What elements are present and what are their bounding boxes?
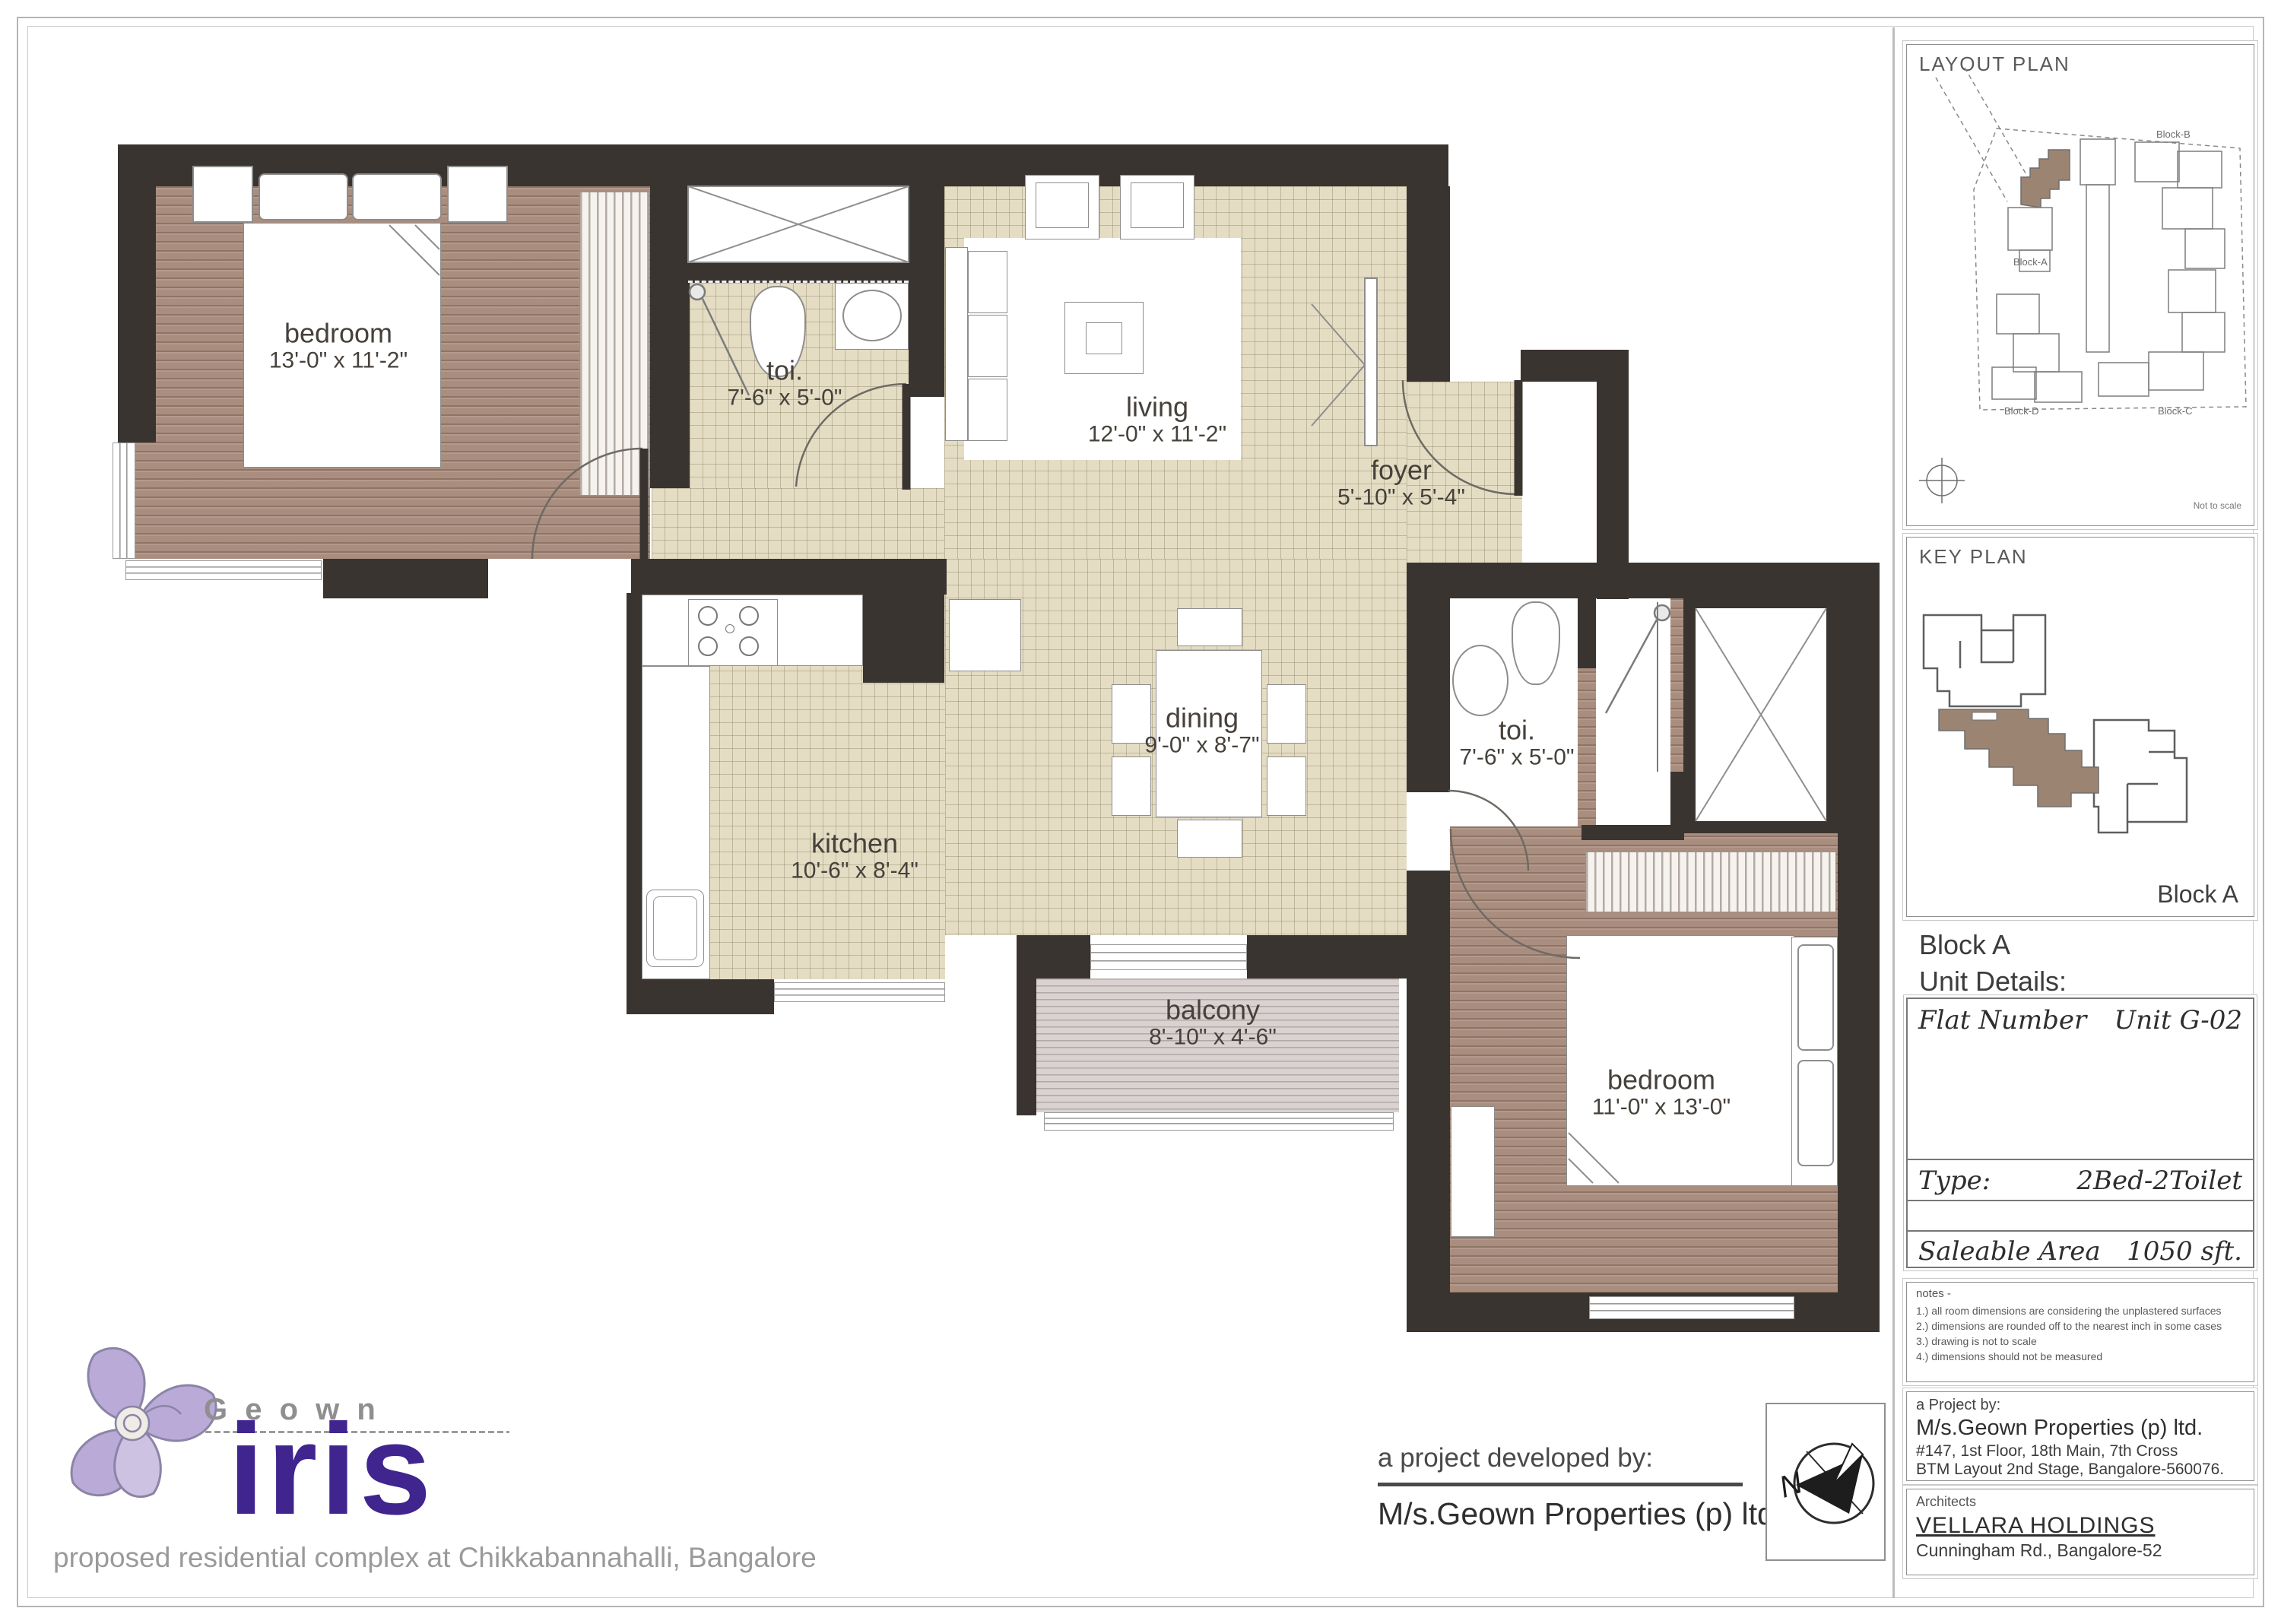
compass-icon (1919, 458, 1965, 503)
room-label-toilet2: toi. 7'-6" x 5'-0" (1459, 716, 1574, 772)
type-label: Type: (1918, 1166, 1991, 1196)
room-name: toi. (727, 357, 842, 385)
saleable-area-label: Saleable Area (1918, 1236, 2101, 1267)
room-label-foyer: foyer 5'-10" x 5'-4" (1337, 456, 1465, 512)
key-plan-title: KEY PLAN (1919, 545, 2028, 569)
sofa-back (945, 247, 968, 441)
unit-highlight (1939, 709, 2099, 807)
wall (909, 144, 944, 397)
iris-flower-logo-icon (40, 1332, 230, 1537)
room-label-bedroom1: bedroom 13'-0" x 11'-2" (269, 319, 408, 375)
project-by-name: M/s.Geown Properties (p) ltd. (1916, 1416, 2245, 1441)
pillow (1797, 1060, 1834, 1166)
burner-icon (739, 636, 759, 656)
north-compass-icon: N (1767, 1404, 1887, 1562)
wall (1407, 563, 1880, 598)
project-by-heading: a Project by: (1916, 1397, 2245, 1414)
not-to-scale-note: Not to scale (2194, 500, 2242, 511)
table-row-flat: Flat Number Unit G-02 (1908, 999, 2253, 1160)
room-name: kitchen (791, 829, 918, 858)
wall (1521, 350, 1629, 382)
cabinet (949, 599, 1021, 671)
room-dims: 11'-0" x 13'-0" (1592, 1095, 1731, 1121)
toilet-wc-icon (1512, 601, 1560, 685)
unit-details-table: Flat Number Unit G-02 Type: 2Bed-2Toilet… (1906, 998, 2254, 1268)
corridor-floor (652, 488, 945, 560)
bedside-cabinet (192, 166, 253, 223)
room-label-balcony: balcony 8'-10" x 4'-6" (1149, 996, 1277, 1051)
room-label-dining: dining 9'-0" x 8'-7" (1144, 704, 1259, 760)
saleable-area-value: 1050 sft. (2127, 1236, 2242, 1267)
sofa-cushion (968, 379, 1007, 441)
dining-chair (1177, 820, 1242, 858)
room-dims: 7'-6" x 5'-0" (727, 385, 842, 412)
unit-highlight-notch (1972, 712, 1997, 720)
window (125, 560, 322, 580)
bedside-cabinet (447, 166, 508, 223)
block-d-label: Block-D (2004, 405, 2039, 417)
room-name: bedroom (1592, 1066, 1731, 1095)
burner-knob (725, 624, 734, 633)
north-label: N (1775, 1466, 1807, 1505)
room-dims: 8'-10" x 4'-6" (1149, 1025, 1277, 1051)
project-by-address1: #147, 1st Floor, 18th Main, 7th Cross (1916, 1442, 2245, 1461)
developer-name: M/s.Geown Properties (p) ltd. (1378, 1496, 1783, 1532)
wall (323, 559, 488, 598)
room-label-living: living 12'-0" x 11'-2" (1088, 393, 1226, 449)
notes-heading: notes - (1916, 1287, 2245, 1300)
stove-icon (688, 599, 778, 666)
pillow (352, 173, 442, 220)
table-row-type: Type: 2Bed-2Toilet (1908, 1160, 2253, 1201)
armchair-seat (1131, 182, 1184, 228)
wall (118, 186, 156, 442)
room-label-kitchen: kitchen 10'-6" x 8'-4" (791, 829, 918, 885)
armchair-seat (1036, 182, 1089, 228)
site-road (1936, 68, 2246, 410)
key-plan-sketch (1907, 571, 2254, 890)
layout-plan-panel: LAYOUT PLAN (1906, 44, 2254, 526)
dining-chair (1112, 756, 1151, 816)
block-footprints (1992, 139, 2225, 402)
floor-plan-sheet: bedroom 13'-0" x 11'-2" toi. 7'-6" x 5'-… (0, 0, 2281, 1624)
burner-icon (739, 606, 759, 626)
wall (631, 559, 947, 595)
brand-product: iris (228, 1405, 434, 1534)
wall (1247, 935, 1408, 979)
room-label-bedroom2: bedroom 11'-0" x 13'-0" (1592, 1066, 1731, 1121)
developer-underline (1378, 1483, 1743, 1486)
washbasin-icon (1452, 645, 1509, 716)
room-dims: 12'-0" x 11'-2" (1088, 422, 1226, 449)
wall (627, 593, 642, 981)
wall (1407, 598, 1450, 792)
wall (1407, 186, 1450, 382)
block-a-label: Block-A (2013, 256, 2048, 268)
note-item: 1.) all room dimensions are considering … (1916, 1305, 2245, 1317)
project-by-box: a Project by: M/s.Geown Properties (p) l… (1906, 1391, 2254, 1481)
wardrobe (1585, 852, 1836, 912)
wall (1670, 772, 1686, 831)
sink-icon (646, 890, 704, 967)
window (1589, 1296, 1794, 1319)
key-plan-corner-label: Block A (2157, 880, 2238, 909)
wardrobe (579, 192, 649, 496)
room-label-toilet1: toi. 7'-6" x 5'-0" (727, 357, 842, 412)
wall (1017, 979, 1036, 1115)
washbasin-icon (842, 290, 902, 341)
project-by-address2: BTM Layout 2nd Stage, Bangalore-560076. (1916, 1461, 2245, 1479)
note-item: 2.) dimensions are rounded off to the ne… (1916, 1320, 2245, 1332)
window (113, 442, 135, 559)
north-compass-box: N (1765, 1403, 1886, 1561)
burner-icon (698, 636, 718, 656)
room-name: foyer (1337, 456, 1465, 485)
block-heading: Block A (1919, 929, 2010, 961)
shaft-threshold-wall (688, 260, 909, 283)
key-plan-panel: KEY PLAN Block A (1906, 537, 2254, 917)
sofa-cushion (968, 315, 1007, 377)
architects-box: Architects VELLARA HOLDINGS Cunningham R… (1906, 1489, 2254, 1575)
wall (1581, 825, 1684, 840)
room-name: toi. (1459, 716, 1574, 745)
note-item: 3.) drawing is not to scale (1916, 1335, 2245, 1347)
flat-number-label: Flat Number (1918, 1005, 2086, 1036)
layout-plan-sketch: Block-B Block-A Block-D Block-C Not to s… (1907, 66, 2254, 522)
balcony-sliding-door (1090, 944, 1247, 970)
wall (1838, 598, 1880, 1332)
wall (863, 593, 944, 683)
wall (627, 979, 774, 1014)
window (774, 982, 945, 1002)
window (1044, 1112, 1394, 1131)
table-row-area: Saleable Area 1050 sft. (1908, 1232, 2253, 1270)
block-b-label: Block-B (2156, 128, 2191, 140)
room-dims: 7'-6" x 5'-0" (1459, 745, 1574, 772)
type-value: 2Bed-2Toilet (2076, 1166, 2242, 1196)
room-dims: 10'-6" x 8'-4" (791, 858, 918, 885)
flat-number-value: Unit G-02 (2114, 1005, 2242, 1036)
wall (1407, 871, 1450, 1332)
note-item: 4.) dimensions should not be measured (1916, 1350, 2245, 1362)
dining-chair (1177, 608, 1242, 646)
wall (1578, 598, 1596, 668)
wall (650, 144, 690, 488)
room-name: balcony (1149, 996, 1277, 1025)
notes-box: notes - 1.) all room dimensions are cons… (1906, 1282, 2254, 1382)
unit-details-heading: Unit Details: (1919, 966, 2067, 998)
pillow (1797, 944, 1834, 1051)
block-c-label: Block-C (2158, 405, 2193, 417)
room-dims: 9'-0" x 8'-7" (1144, 733, 1259, 760)
dining-chair (1267, 684, 1306, 744)
shower2-floor (1596, 598, 1670, 825)
sink-basin (653, 896, 697, 960)
dresser (1451, 1106, 1495, 1237)
brand-tagline: proposed residential complex at Chikkaba… (53, 1542, 817, 1574)
bed (1566, 935, 1794, 1186)
room-dims: 13'-0" x 11'-2" (269, 348, 408, 375)
architects-address: Cunningham Rd., Bangalore-52 (1916, 1540, 2245, 1561)
sofa-cushion (968, 251, 1007, 313)
table-row-spacer (1908, 1201, 2253, 1232)
wall (1017, 935, 1090, 979)
architects-name: VELLARA HOLDINGS (1916, 1513, 2245, 1539)
room-dims: 5'-10" x 5'-4" (1337, 485, 1465, 512)
developer-heading: a project developed by: (1378, 1443, 1653, 1473)
sidebar-divider (1892, 27, 1895, 1598)
room-name: bedroom (269, 319, 408, 348)
dining-chair (1267, 756, 1306, 816)
pillow (259, 173, 348, 220)
coffee-table-inner (1086, 322, 1122, 354)
room-name: living (1088, 393, 1226, 422)
burner-icon (698, 606, 718, 626)
room-name: dining (1144, 704, 1259, 733)
architects-heading: Architects (1916, 1494, 2245, 1510)
